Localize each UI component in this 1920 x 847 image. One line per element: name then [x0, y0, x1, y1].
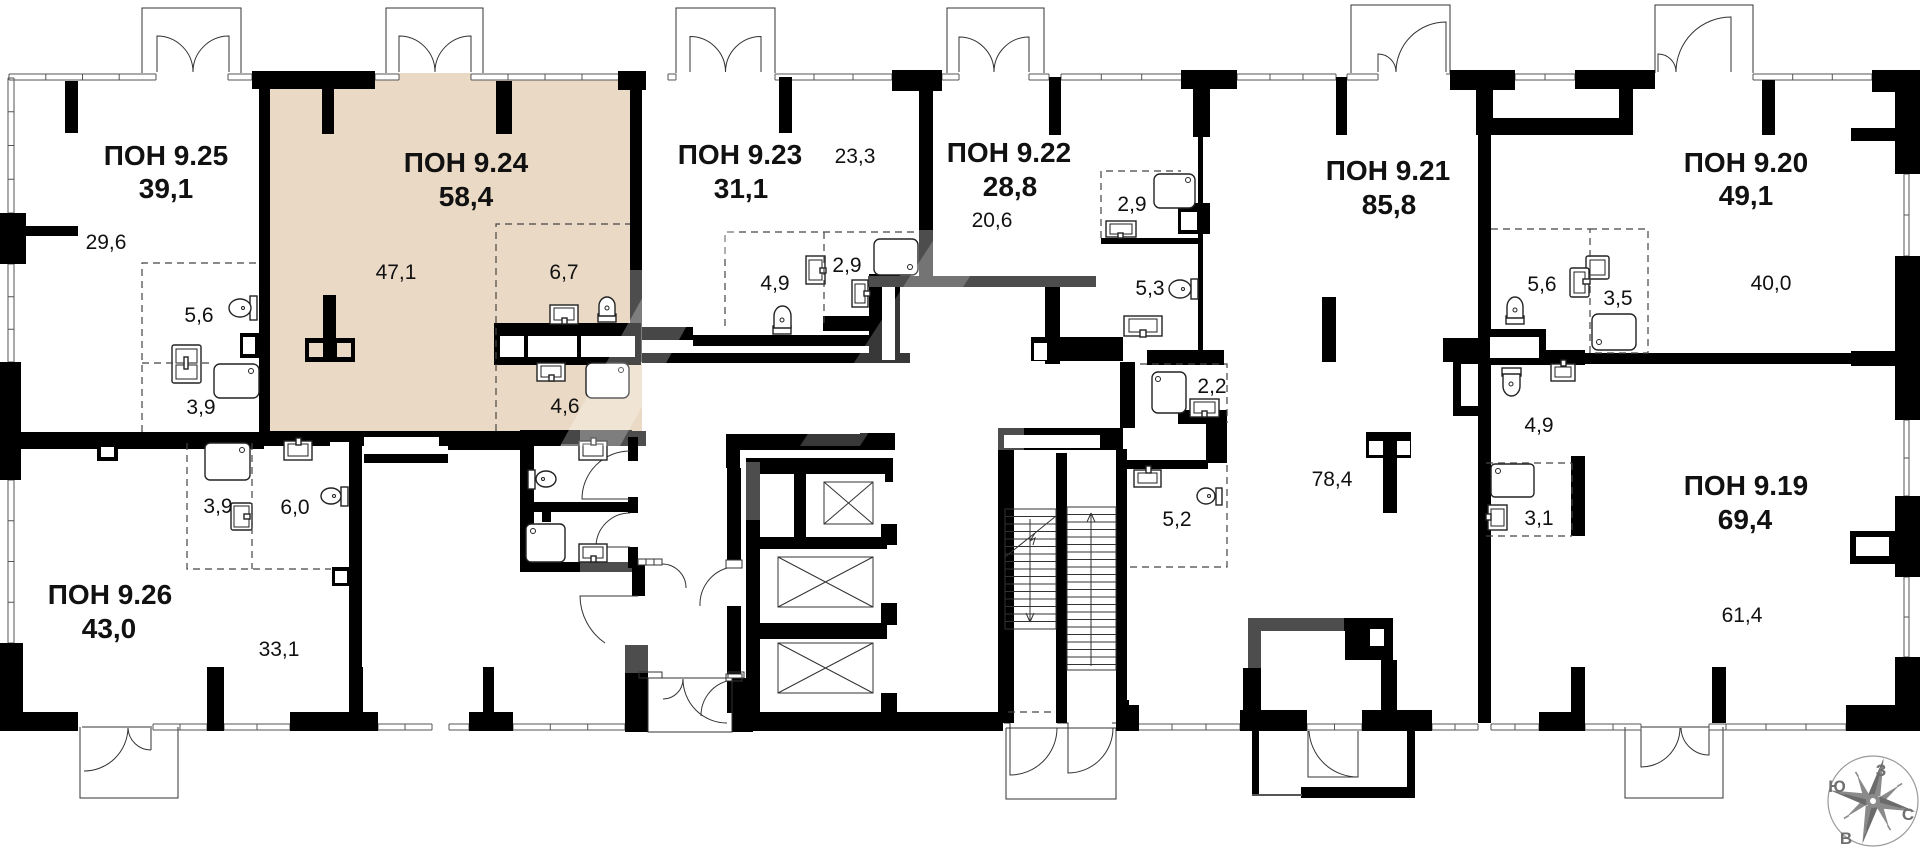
svg-text:5,6: 5,6: [1527, 273, 1556, 296]
svg-text:58,4: 58,4: [439, 181, 494, 212]
svg-text:ПОН 9.26: ПОН 9.26: [48, 579, 172, 610]
svg-text:В: В: [1840, 829, 1852, 847]
svg-text:3,5: 3,5: [1603, 287, 1632, 310]
svg-text:5,3: 5,3: [1135, 277, 1164, 300]
svg-text:5,6: 5,6: [184, 304, 213, 327]
svg-text:31,1: 31,1: [714, 173, 769, 204]
svg-text:49,1: 49,1: [1719, 180, 1774, 211]
svg-text:ПОН 9.20: ПОН 9.20: [1684, 147, 1808, 178]
svg-text:6,7: 6,7: [549, 261, 578, 284]
svg-text:40,0: 40,0: [1751, 272, 1792, 295]
svg-text:39,1: 39,1: [139, 173, 194, 204]
svg-text:ПОН 9.23: ПОН 9.23: [678, 139, 802, 170]
svg-text:С: С: [1902, 805, 1914, 824]
svg-text:85,8: 85,8: [1362, 189, 1417, 220]
svg-text:4,6: 4,6: [550, 395, 579, 418]
svg-text:3,9: 3,9: [186, 396, 215, 419]
svg-text:2,9: 2,9: [832, 254, 861, 277]
svg-text:З: З: [1876, 761, 1887, 780]
svg-text:33,1: 33,1: [259, 638, 300, 661]
svg-text:2,2: 2,2: [1197, 375, 1226, 398]
svg-text:78,4: 78,4: [1312, 468, 1353, 491]
svg-text:4,9: 4,9: [1524, 414, 1553, 437]
svg-text:69,4: 69,4: [1718, 504, 1773, 535]
svg-text:ПОН 9.24: ПОН 9.24: [404, 147, 529, 178]
svg-text:23,3: 23,3: [835, 145, 876, 168]
svg-text:6,0: 6,0: [280, 496, 309, 519]
svg-text:4,9: 4,9: [760, 272, 789, 295]
svg-text:5,2: 5,2: [1162, 508, 1191, 531]
svg-text:43,0: 43,0: [82, 613, 137, 644]
svg-text:47,1: 47,1: [376, 261, 417, 284]
svg-text:2,9: 2,9: [1117, 193, 1146, 216]
svg-text:20,6: 20,6: [972, 209, 1013, 232]
svg-text:61,4: 61,4: [1722, 604, 1763, 627]
svg-text:ПОН 9.21: ПОН 9.21: [1326, 155, 1450, 186]
svg-text:3,9: 3,9: [203, 495, 232, 518]
svg-text:29,6: 29,6: [86, 231, 127, 254]
svg-text:Ю: Ю: [1828, 777, 1846, 796]
svg-text:28,8: 28,8: [983, 171, 1038, 202]
svg-text:ПОН 9.19: ПОН 9.19: [1684, 470, 1808, 501]
svg-text:ПОН 9.22: ПОН 9.22: [947, 137, 1071, 168]
svg-text:ПОН 9.25: ПОН 9.25: [104, 140, 228, 171]
svg-text:3,1: 3,1: [1524, 507, 1553, 530]
